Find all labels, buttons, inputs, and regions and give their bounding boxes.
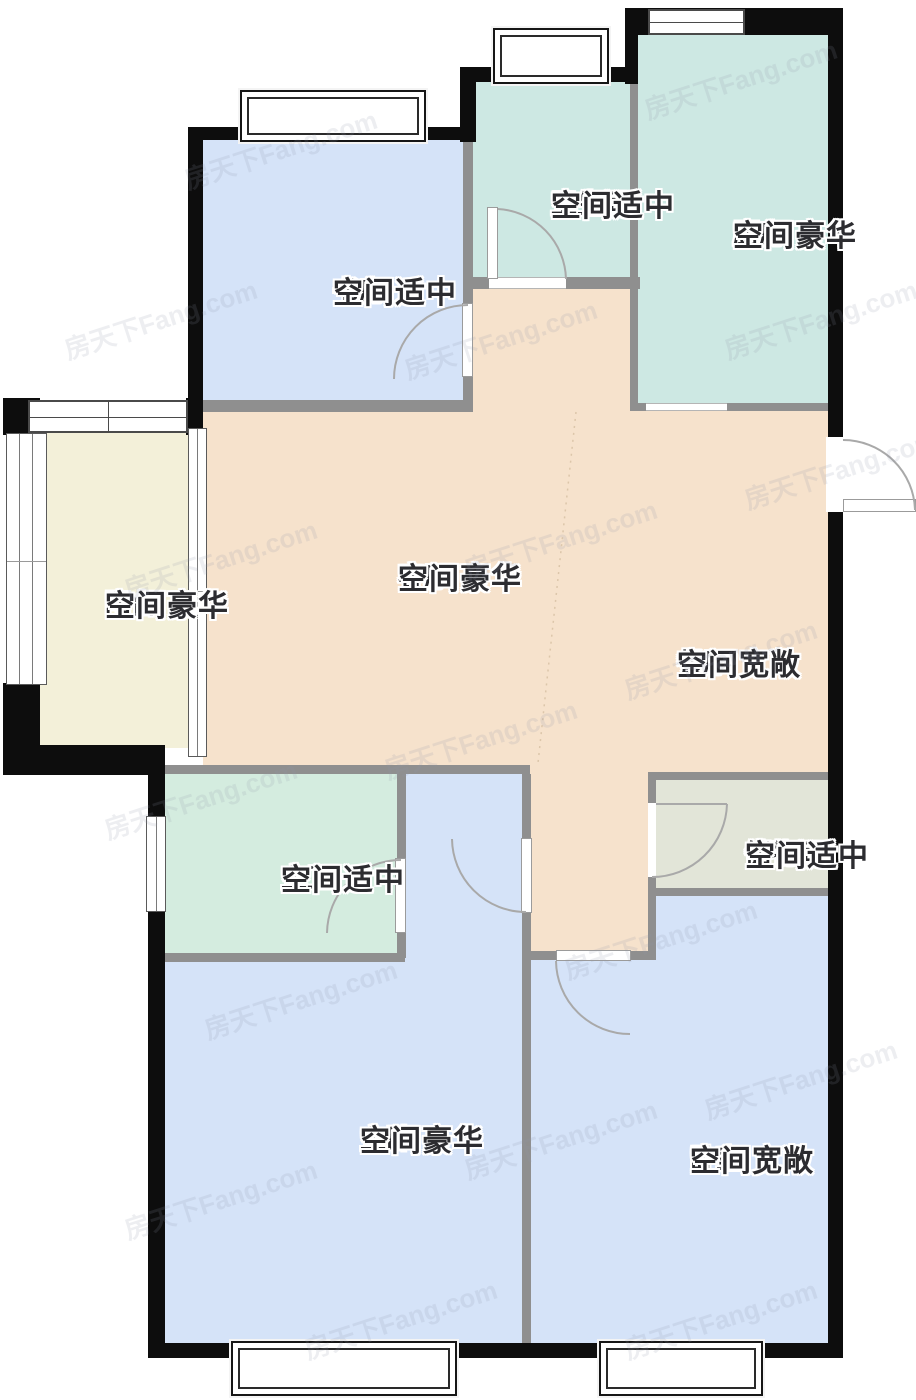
room-desc: 空间宽敞 bbox=[690, 1144, 814, 1179]
room-desc: 空间豪华 bbox=[398, 562, 522, 597]
study-door bbox=[462, 303, 473, 377]
room-desc: 空间适中 bbox=[333, 276, 457, 311]
kitchen-opening bbox=[646, 403, 727, 411]
hall-corridor bbox=[530, 765, 648, 960]
wall bbox=[463, 376, 473, 412]
entrance-door bbox=[843, 499, 916, 512]
wall bbox=[397, 774, 406, 858]
room-desc: 空间豪华 bbox=[105, 589, 229, 624]
bathroom-bay-window bbox=[493, 28, 609, 84]
room-desc: 空间适中 bbox=[551, 189, 675, 224]
wall bbox=[522, 912, 531, 1345]
wall bbox=[638, 403, 646, 411]
bathroom-door bbox=[487, 207, 498, 279]
master-bedroom-bay-window bbox=[231, 1341, 457, 1396]
balcony-left-window bbox=[6, 433, 47, 685]
outer-wall bbox=[3, 683, 40, 775]
wall bbox=[648, 772, 835, 780]
wall bbox=[648, 896, 656, 960]
study-bay-window bbox=[240, 90, 426, 142]
hall-by-bathroom bbox=[473, 287, 630, 412]
room-desc: 空间豪华 bbox=[733, 219, 857, 254]
wall bbox=[566, 277, 640, 289]
master-bath-window bbox=[146, 816, 166, 912]
wall bbox=[465, 277, 489, 289]
wall bbox=[727, 403, 835, 411]
storage-door-gap bbox=[648, 803, 656, 877]
master-bedroom-door bbox=[521, 838, 532, 913]
wall bbox=[203, 400, 473, 412]
bedroom-door bbox=[556, 950, 631, 961]
floorplan-canvas: 书房 空间适中 卫生间 空间适中 厨房 空间豪华 客厅 空间豪华 阳台 空间豪华… bbox=[0, 0, 916, 1400]
room-bedroom-upper bbox=[656, 896, 828, 962]
outer-wall bbox=[188, 127, 203, 402]
room-desc: 空间豪华 bbox=[360, 1124, 484, 1159]
wall bbox=[648, 888, 835, 896]
room-desc: 空间适中 bbox=[281, 863, 405, 898]
room-desc: 空间宽敞 bbox=[677, 648, 801, 683]
outer-wall bbox=[828, 512, 843, 1358]
room-desc: 空间适中 bbox=[745, 839, 869, 874]
wall bbox=[163, 953, 405, 962]
room-study bbox=[203, 140, 463, 402]
wall bbox=[522, 774, 531, 838]
wall bbox=[530, 951, 556, 960]
bedroom-bay-window bbox=[599, 1341, 763, 1396]
balcony-top-window bbox=[28, 400, 188, 433]
room-master-bedroom-nook bbox=[405, 773, 522, 963]
wall bbox=[163, 765, 530, 774]
wall bbox=[630, 82, 638, 411]
bathroom-door-gap bbox=[489, 277, 566, 289]
kitchen-window bbox=[648, 9, 745, 35]
